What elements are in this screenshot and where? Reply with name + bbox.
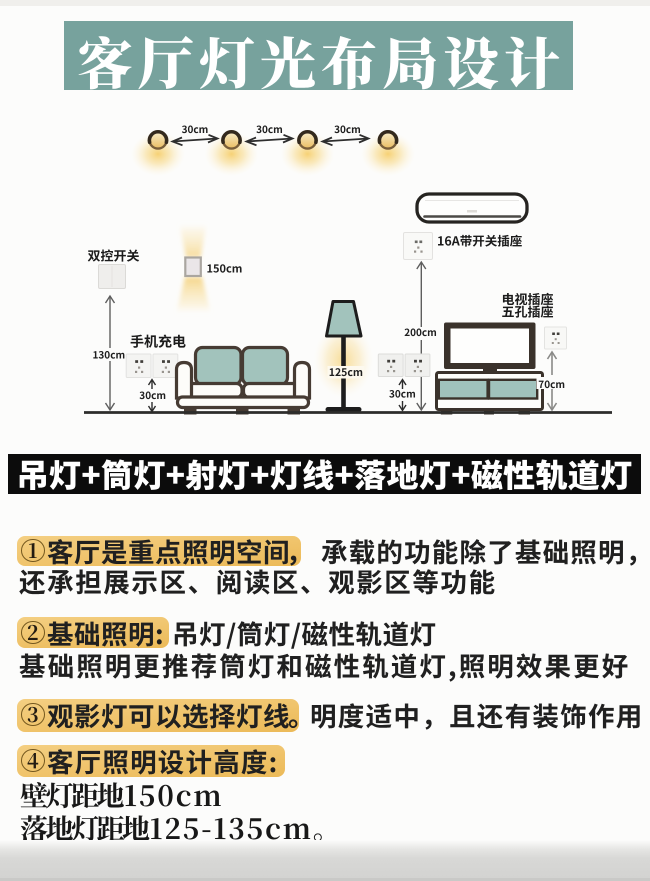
- svg-text:150cm: 150cm: [207, 261, 243, 277]
- svg-text:手机充电: 手机充电: [130, 332, 186, 352]
- svg-text:双控开关: 双控开关: [88, 246, 140, 265]
- svg-text:30cm: 30cm: [182, 121, 209, 136]
- svg-text:130cm: 130cm: [93, 347, 126, 362]
- svg-text:16A带开关插座: 16A带开关插座: [437, 231, 523, 250]
- svg-text:五孔插座: 五孔插座: [502, 302, 554, 321]
- svg-text:30cm: 30cm: [256, 121, 283, 136]
- svg-text:125cm: 125cm: [329, 365, 363, 380]
- svg-text:200cm: 200cm: [404, 324, 437, 339]
- svg-text:30cm: 30cm: [334, 121, 361, 136]
- svg-text:30cm: 30cm: [389, 386, 416, 401]
- svg-text:70cm: 70cm: [538, 376, 565, 391]
- svg-text:30cm: 30cm: [139, 387, 166, 402]
